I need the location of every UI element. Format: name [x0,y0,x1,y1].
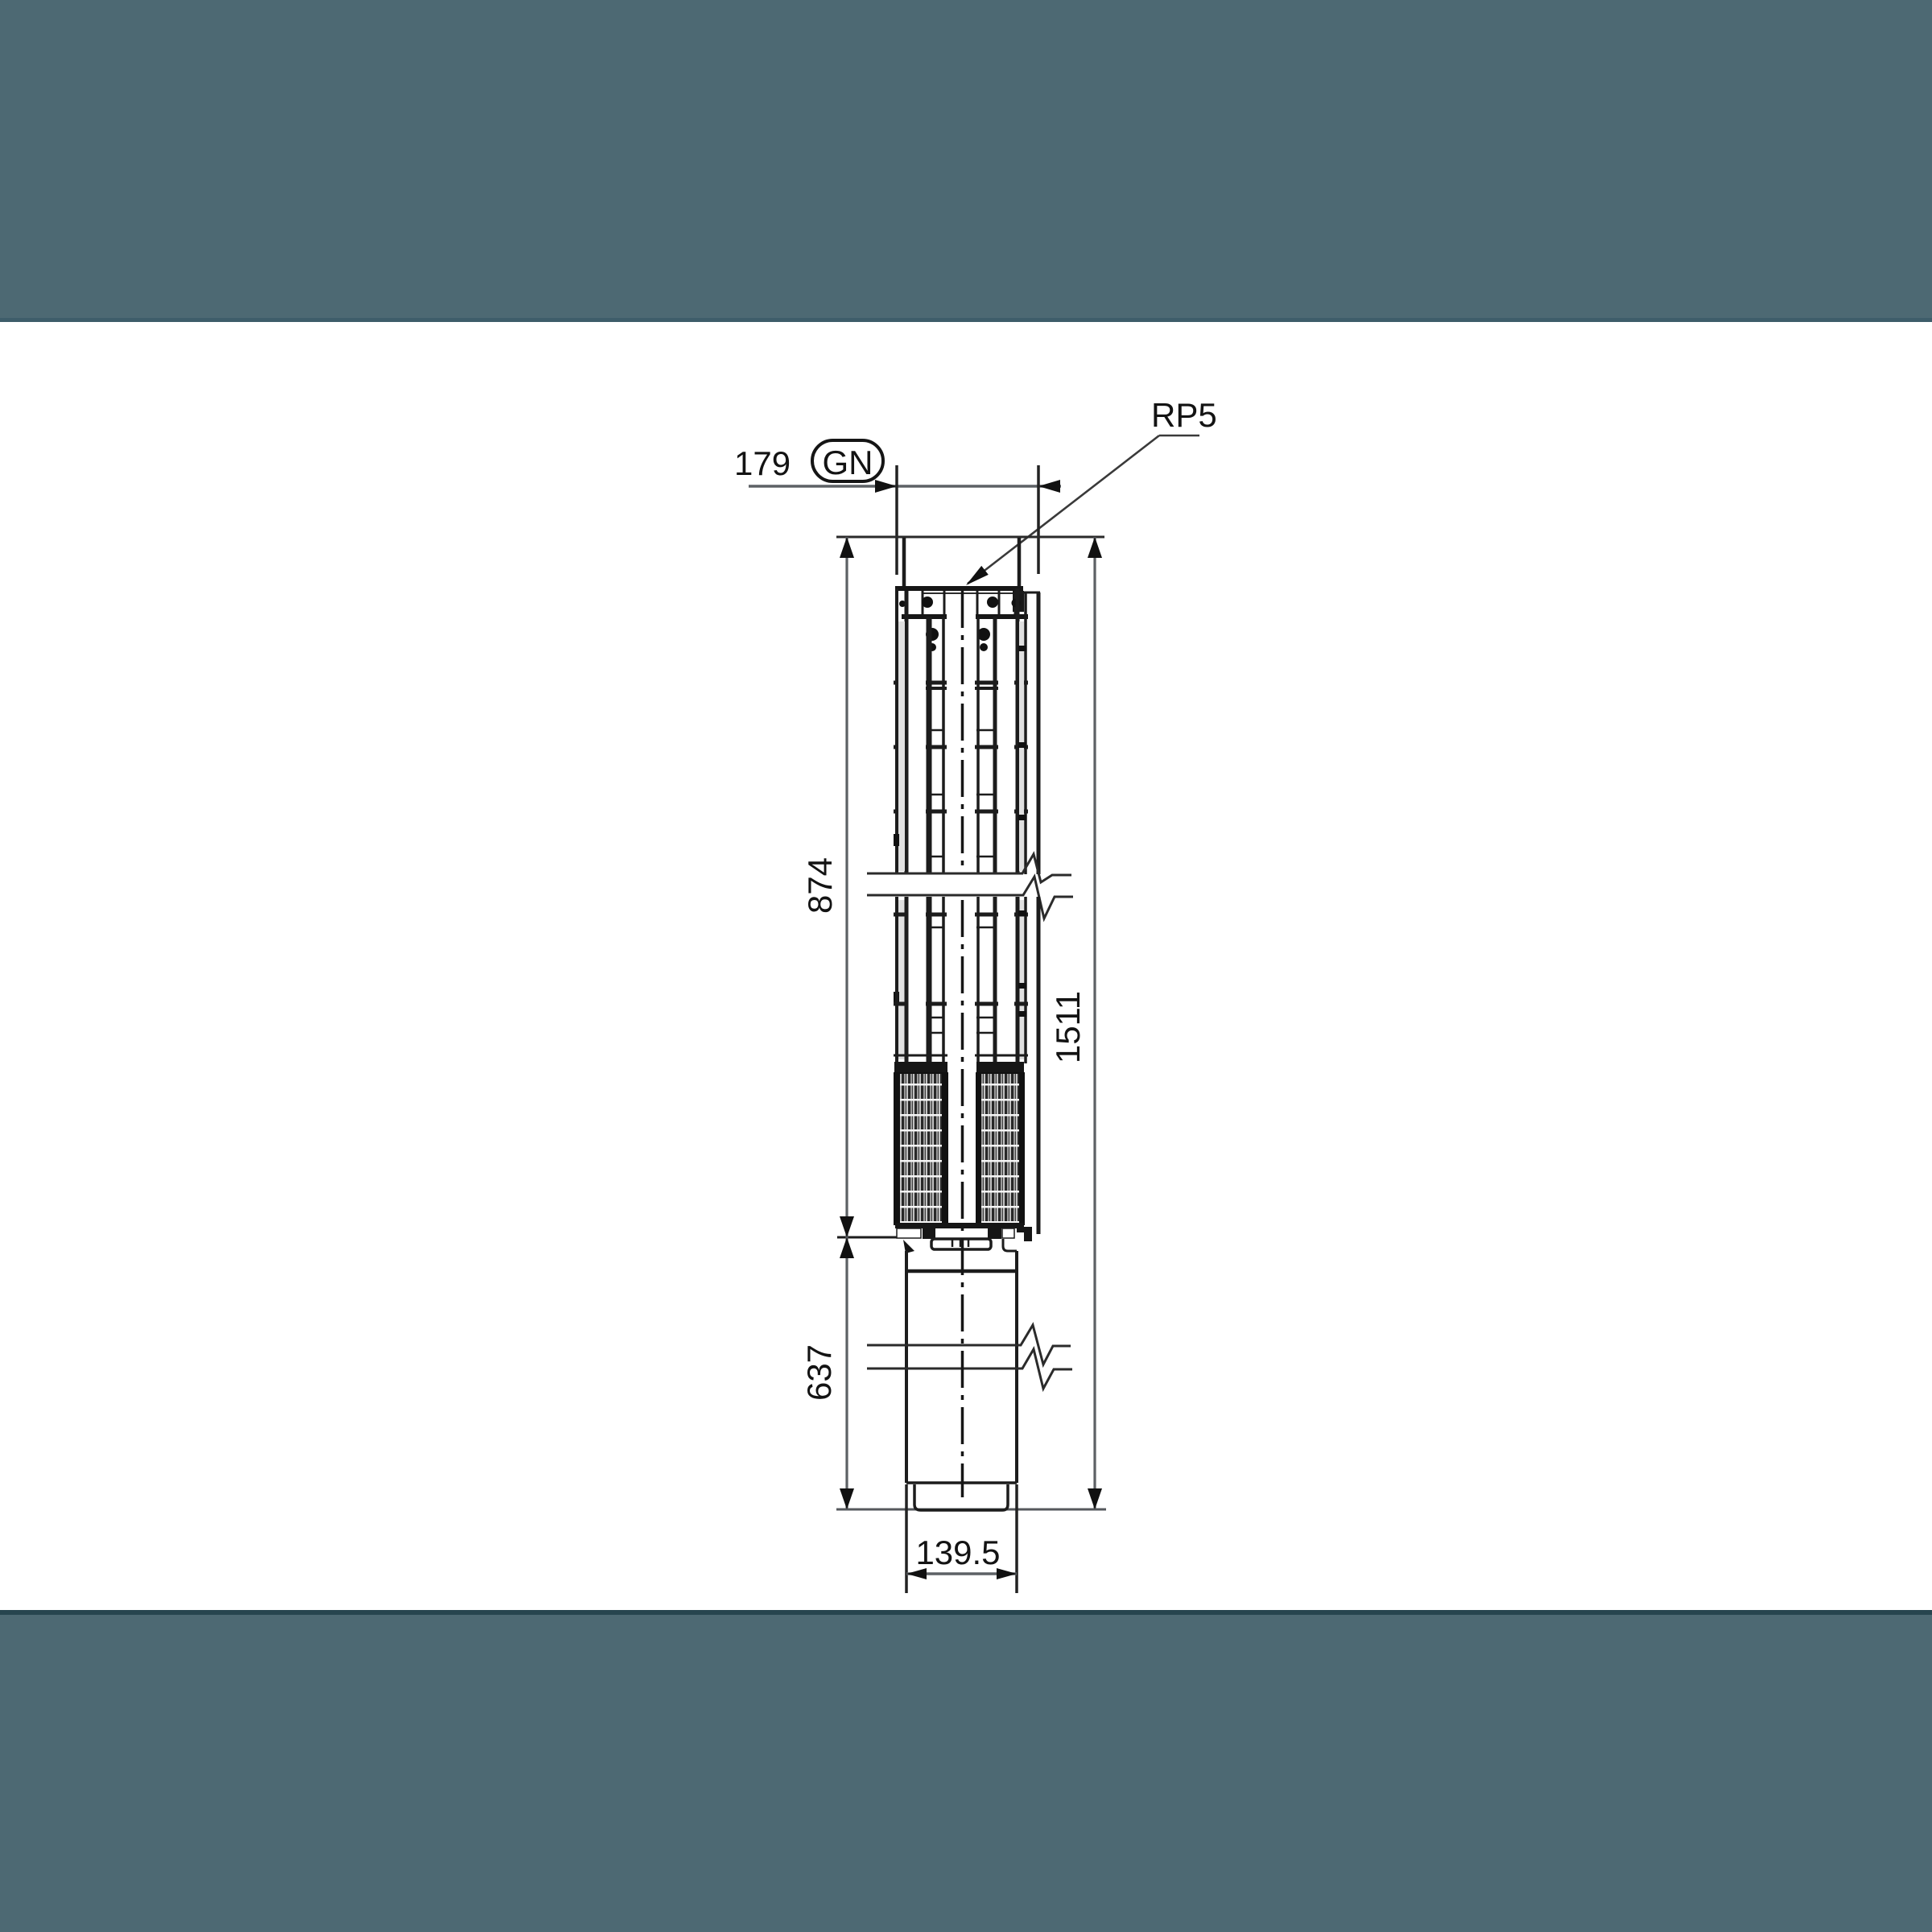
svg-text:139.5: 139.5 [915,1534,1000,1571]
svg-text:637: 637 [800,1344,838,1401]
svg-text:179: 179 [734,444,791,482]
svg-text:1511: 1511 [1049,991,1087,1063]
svg-text:874: 874 [801,857,839,914]
svg-text:RP5: RP5 [1151,396,1217,434]
svg-text:GN: GN [823,444,873,481]
